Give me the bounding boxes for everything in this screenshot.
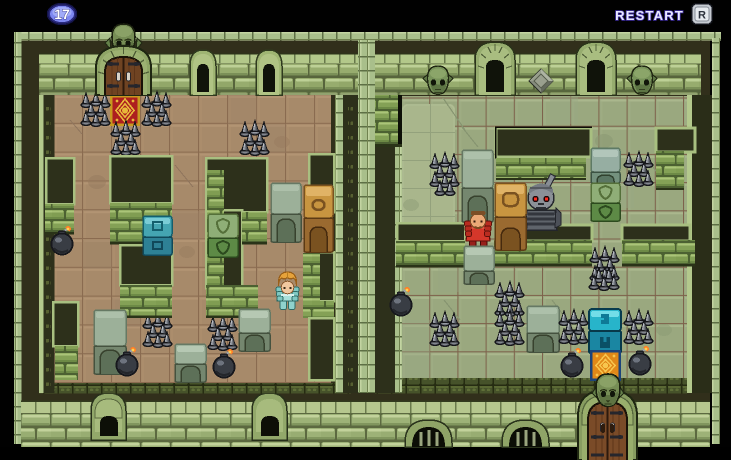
svg-text:RESTART: RESTART <box>615 8 684 23</box>
svg-text:R: R <box>698 10 706 22</box>
svg-text:17: 17 <box>54 6 70 22</box>
